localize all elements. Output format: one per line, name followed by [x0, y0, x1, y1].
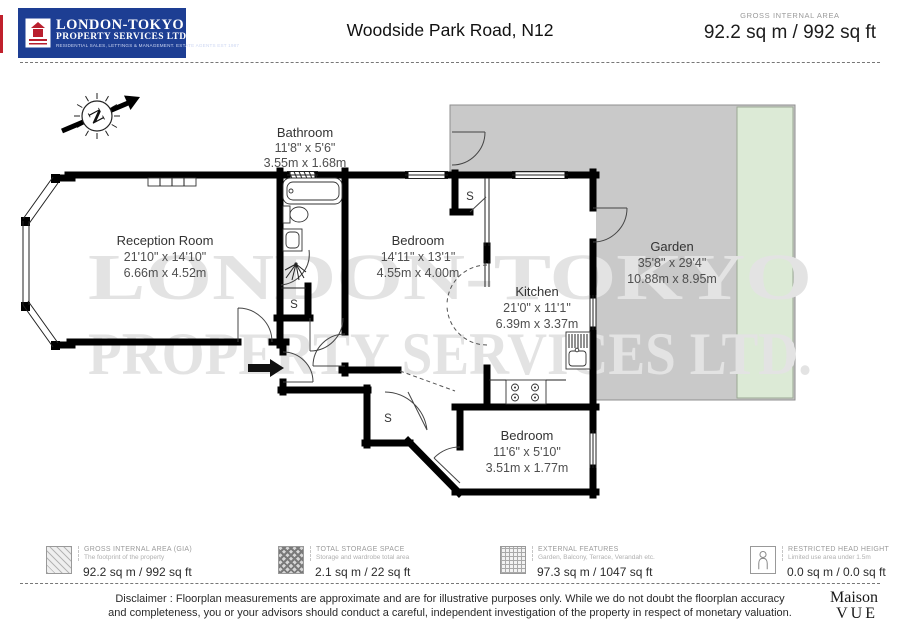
legend-headheight-value: 0.0 sq m / 0.0 sq ft: [782, 565, 889, 579]
legend-storage-title: TOTAL STORAGE SPACE: [316, 546, 410, 553]
legend-external-value: 97.3 sq m / 1047 sq ft: [532, 565, 655, 579]
legend-item-gia: GROSS INTERNAL AREA (GIA) The footprint …: [46, 546, 192, 579]
floorplan-canvas: LONDON-TOKYO PROPERTY SERVICES LTD.: [0, 0, 900, 636]
disclaimer-line1: Disclaimer : Floorplan measurements are …: [40, 592, 860, 606]
stove-icon: [506, 380, 546, 404]
bathtub-icon: [283, 178, 342, 204]
reception-dims-imperial: 21'10" x 14'10": [124, 250, 206, 264]
radiator-icon: [148, 178, 196, 186]
gia-value: 92.2 sq m / 992 sq ft: [704, 22, 876, 44]
bathroom-label: Bathroom: [277, 125, 333, 140]
legend-external-subtitle: Garden, Balcony, Terrace, Verandah etc.: [538, 554, 655, 561]
toilet-icon: [283, 206, 308, 223]
compass: N: [62, 93, 140, 139]
legend-storage-value: 2.1 sq m / 22 sq ft: [310, 565, 410, 579]
maison-vue-brand: Maison VUE: [830, 590, 878, 622]
garden-dims-imperial: 35'8" x 29'4": [638, 256, 707, 270]
legend-external-title: EXTERNAL FEATURES: [538, 546, 655, 553]
bedroom2-label: Bedroom: [501, 428, 554, 443]
legend-gia-title: GROSS INTERNAL AREA (GIA): [84, 546, 192, 553]
storage-check-swatch: [278, 546, 304, 574]
kitchen-dims-metric: 6.39m x 3.37m: [496, 317, 579, 331]
brand-line2: VUE: [830, 606, 878, 622]
storage-label-bedroom1: S: [466, 191, 474, 203]
garden-label: Garden: [650, 239, 693, 254]
disclaimer: Disclaimer : Floorplan measurements are …: [40, 592, 860, 620]
logo-line3: RESIDENTIAL SALES, LETTINGS & MANAGEMENT…: [56, 44, 239, 49]
storage-label-hall: S: [384, 413, 392, 425]
legend-storage-subtitle: Storage and wardrobe total area: [316, 554, 410, 561]
bedroom2-dims-imperial: 11'6" x 5'10": [493, 445, 561, 459]
watermark-line2: PROPERTY SERVICES LTD.: [88, 321, 812, 387]
basin-icon: [283, 229, 302, 251]
legend-headheight-title: RESTRICTED HEAD HEIGHT: [788, 546, 889, 553]
header-divider: [20, 62, 880, 63]
reception-label: Reception Room: [117, 233, 214, 248]
legend-gia-subtitle: The footprint of the property: [84, 554, 192, 561]
legend-item-headheight: RESTRICTED HEAD HEIGHT Limited use area …: [750, 546, 889, 579]
storage-label-bathroom: S: [290, 299, 298, 311]
bedroom2-dims-metric: 3.51m x 1.77m: [486, 461, 569, 475]
gia-label: GROSS INTERNAL AREA: [704, 11, 876, 20]
external-grid-swatch: [500, 546, 526, 574]
legend-item-storage: TOTAL STORAGE SPACE Storage and wardrobe…: [278, 546, 410, 579]
reception-dims-metric: 6.66m x 4.52m: [124, 266, 207, 280]
legend-gia-value: 92.2 sq m / 992 sq ft: [78, 565, 192, 579]
bathroom-dims-imperial: 11'8" x 5'6": [275, 141, 336, 155]
person-swatch: [750, 546, 776, 574]
gia-hatch-swatch: [46, 546, 72, 574]
kitchen-label: Kitchen: [515, 284, 558, 299]
kitchen-sink-icon: [566, 332, 590, 369]
bedroom1-dims-metric: 4.55m x 4.00m: [377, 266, 460, 280]
garden-dims-metric: 10.88m x 8.95m: [627, 272, 717, 286]
bathroom-dims-metric: 3.55m x 1.68m: [264, 156, 347, 170]
legend-headheight-subtitle: Limited use area under 1.5m: [788, 554, 889, 561]
kitchen-dims-imperial: 21'0" x 11'1": [503, 301, 571, 315]
brand-line1: Maison: [830, 590, 878, 606]
disclaimer-line2: and completeness, you or your advisors s…: [40, 606, 860, 620]
person-icon: [752, 548, 774, 572]
bedroom1-dims-imperial: 14'11" x 13'1": [381, 250, 456, 264]
floorplan-page: LONDON-TOKYO PROPERTY SERVICES LTD.: [0, 0, 900, 636]
gross-internal-area: GROSS INTERNAL AREA 92.2 sq m / 992 sq f…: [704, 11, 876, 44]
bedroom1-label: Bedroom: [392, 233, 445, 248]
legend-item-external: EXTERNAL FEATURES Garden, Balcony, Terra…: [500, 546, 655, 579]
footer-divider: [20, 583, 880, 584]
